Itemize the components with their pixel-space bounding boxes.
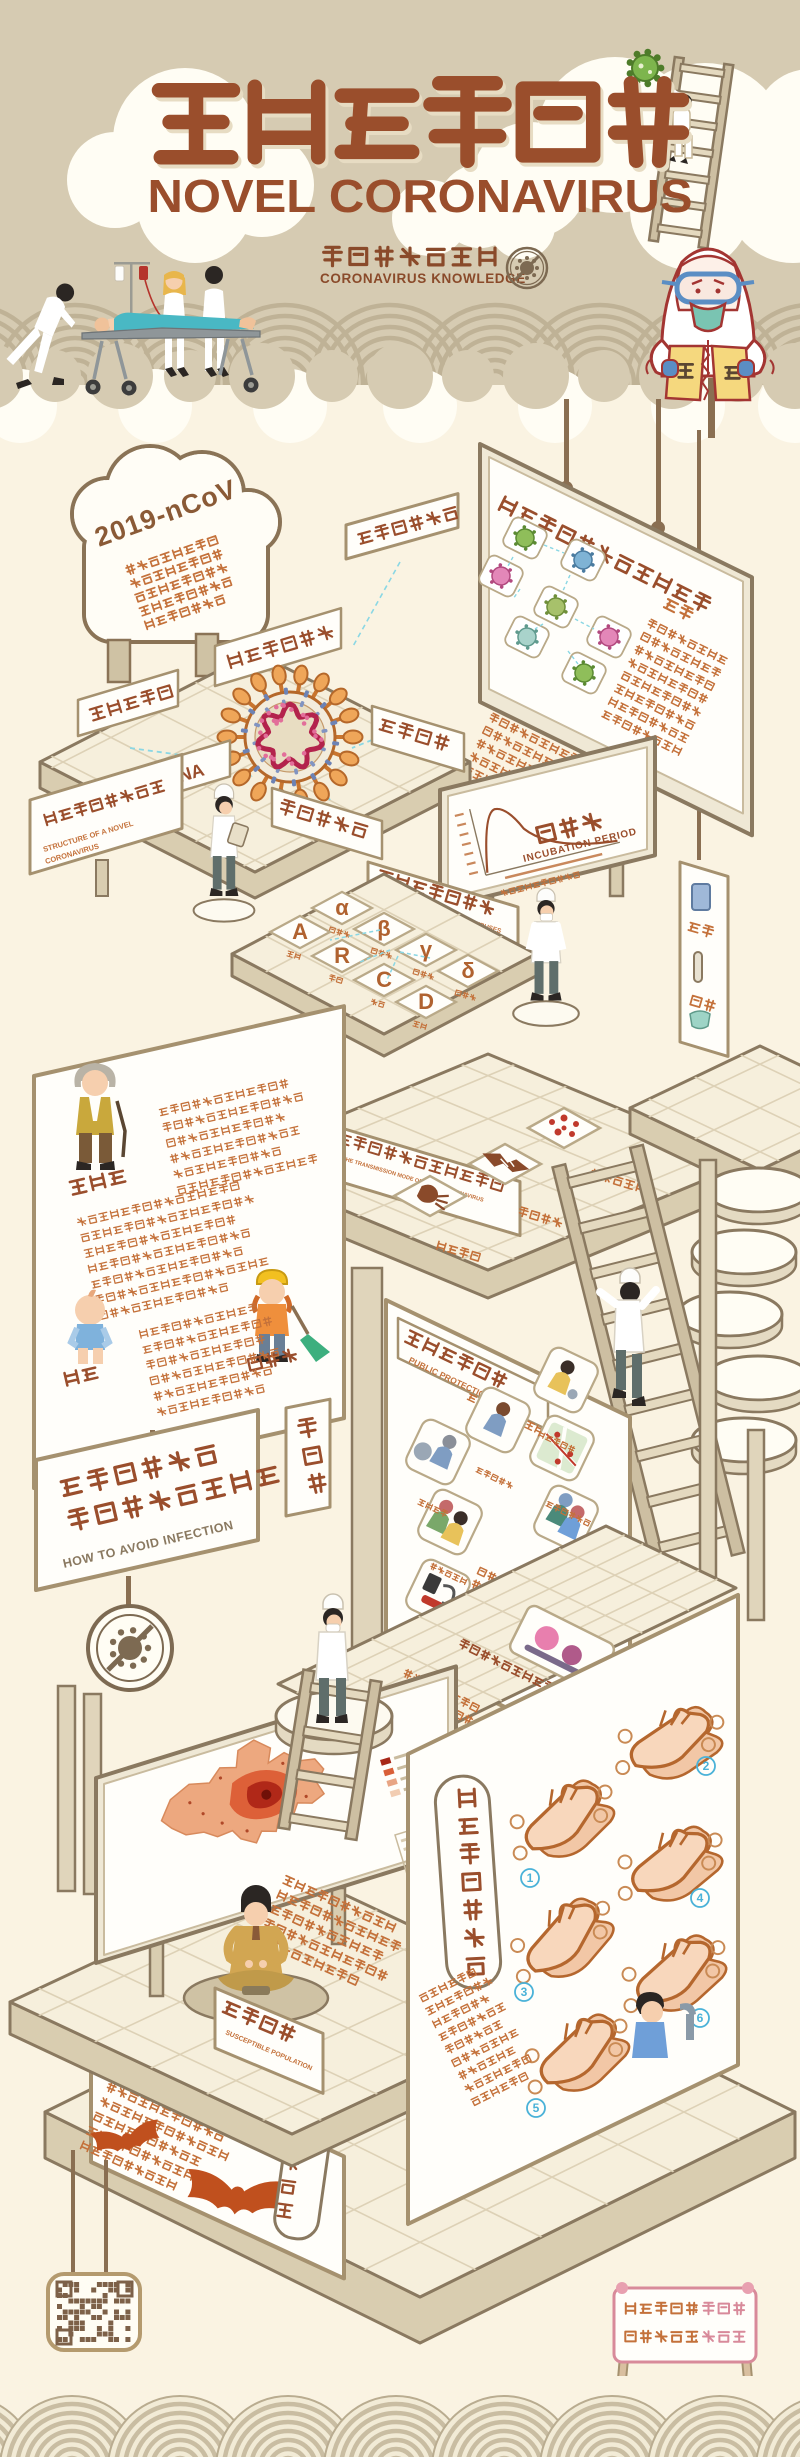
svg-text:CORONAVIRUS KNOWLEDGE: CORONAVIRUS KNOWLEDGE bbox=[320, 271, 526, 286]
svg-text:4: 4 bbox=[697, 1891, 704, 1905]
svg-text:5: 5 bbox=[533, 2101, 540, 2115]
svg-text:R: R bbox=[334, 943, 350, 968]
svg-text::: : bbox=[694, 2301, 698, 2316]
svg-text::: : bbox=[694, 2329, 698, 2344]
svg-text:δ: δ bbox=[461, 958, 474, 983]
svg-text:3: 3 bbox=[521, 1985, 528, 1999]
svg-text:2: 2 bbox=[703, 1759, 710, 1773]
svg-text:A: A bbox=[292, 919, 308, 944]
svg-text:γ: γ bbox=[420, 937, 433, 962]
svg-text:6: 6 bbox=[697, 2011, 704, 2025]
svg-text:β: β bbox=[377, 916, 390, 941]
svg-text:C: C bbox=[376, 967, 392, 992]
svg-text:α: α bbox=[335, 895, 349, 920]
svg-text:NOVEL CORONAVIRUS: NOVEL CORONAVIRUS bbox=[148, 170, 693, 222]
svg-text:1: 1 bbox=[527, 1871, 534, 1885]
svg-text:D: D bbox=[418, 989, 434, 1014]
